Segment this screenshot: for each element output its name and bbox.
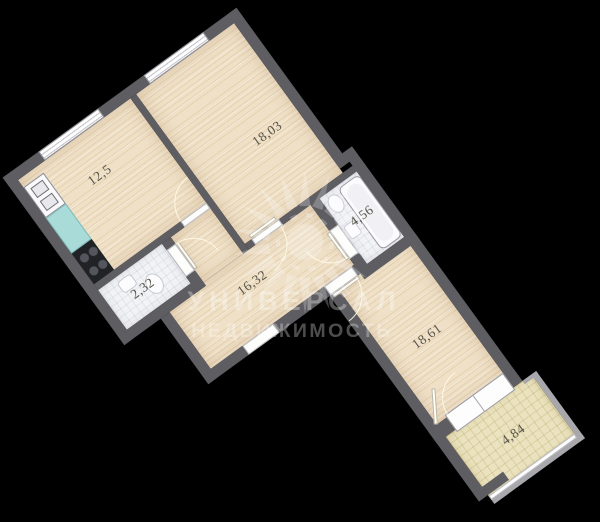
floor-plan: 12,5 18,03 2,32 16,32 4,56 18,61 4,84 (3, 0, 588, 522)
screenshot-canvas: 12,5 18,03 2,32 16,32 4,56 18,61 4,84 (0, 0, 600, 522)
